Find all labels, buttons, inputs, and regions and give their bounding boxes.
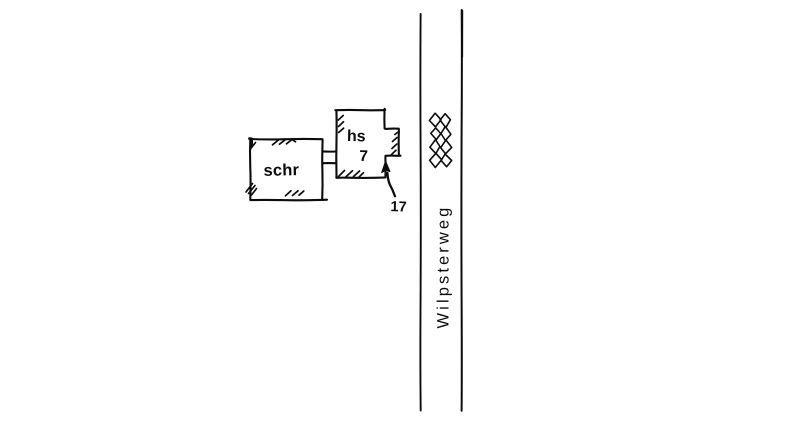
svg-text:hs: hs: [347, 128, 366, 145]
svg-text:schr: schr: [263, 161, 299, 180]
svg-text:7: 7: [359, 148, 368, 165]
svg-text:Wilpsterweg: Wilpsterweg: [435, 205, 453, 329]
svg-text:17: 17: [390, 199, 407, 215]
